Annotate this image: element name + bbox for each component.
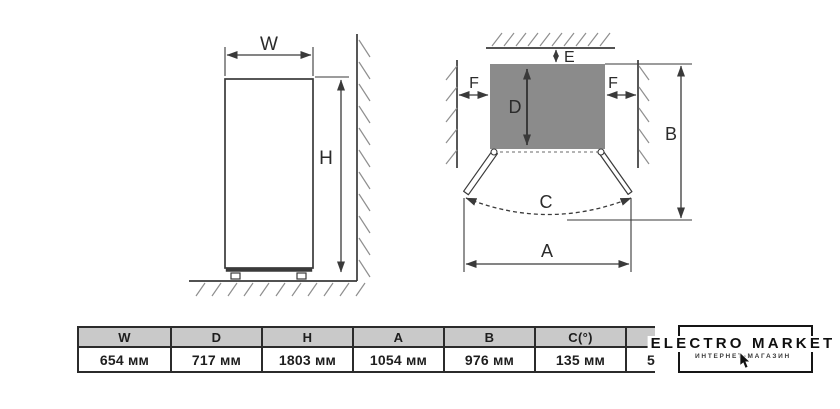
spec-value: 717 мм bbox=[172, 348, 261, 371]
left-wall-hatching bbox=[446, 66, 457, 164]
spec-header: D bbox=[172, 328, 261, 348]
door-hinge-left bbox=[491, 149, 497, 155]
spec-value: 976 мм bbox=[445, 348, 534, 371]
right-wall-hatching bbox=[639, 66, 649, 164]
spec-col-a: A 1054 мм bbox=[352, 328, 443, 371]
total-depth-label: B bbox=[665, 124, 677, 144]
spec-col-c: C(°) 135 мм bbox=[534, 328, 625, 371]
logo-title: ELECTRO MARKET bbox=[648, 336, 839, 352]
wall-hatching bbox=[359, 40, 370, 277]
front-view-diagram: W H bbox=[189, 34, 370, 296]
top-view-diagram: E F F D C B A bbox=[446, 33, 692, 272]
floor-hatching bbox=[196, 283, 365, 296]
spec-col-w: W 654 мм bbox=[79, 328, 170, 371]
width-dimension-label: W bbox=[260, 34, 278, 55]
cabinet-top-view bbox=[490, 64, 605, 149]
spec-header: B bbox=[445, 328, 534, 348]
spec-table-clip: W 654 мм D 717 мм H 1803 мм A 1054 мм B … bbox=[77, 326, 655, 373]
right-clearance-label: F bbox=[608, 75, 618, 92]
height-dimension-label: H bbox=[319, 148, 333, 169]
depth-dimension-label: D bbox=[509, 97, 522, 117]
door-swing-label: C bbox=[540, 192, 553, 212]
spec-value: 1054 мм bbox=[354, 348, 443, 371]
store-logo: ELECTRO MARKET ИНТЕРНЕТ-МАГАЗИН bbox=[662, 325, 824, 375]
fridge-front-outline bbox=[225, 79, 313, 268]
rear-clearance-label: E bbox=[564, 49, 575, 66]
spec-table: W 654 мм D 717 мм H 1803 мм A 1054 мм B … bbox=[77, 326, 655, 373]
product-dimensions-sheet: W H E F F bbox=[0, 0, 840, 409]
door-right-open bbox=[599, 151, 632, 195]
spec-header: W bbox=[79, 328, 170, 348]
door-hinge-right bbox=[598, 149, 604, 155]
spec-value: 1803 мм bbox=[263, 348, 352, 371]
spec-value: 654 мм bbox=[79, 348, 170, 371]
spec-col-h: H 1803 мм bbox=[261, 328, 352, 371]
spec-col-d: D 717 мм bbox=[170, 328, 261, 371]
cursor-icon bbox=[738, 352, 752, 370]
spec-header: H bbox=[263, 328, 352, 348]
fridge-foot-right bbox=[297, 273, 306, 279]
left-clearance-label: F bbox=[469, 75, 479, 92]
fridge-foot-left bbox=[231, 273, 240, 279]
dimension-diagrams: W H E F F bbox=[0, 0, 840, 320]
door-left-open bbox=[464, 150, 498, 194]
spec-value: 135 мм bbox=[536, 348, 625, 371]
spec-header: A bbox=[354, 328, 443, 348]
spec-header: C(°) bbox=[536, 328, 625, 348]
doors-open-width-label: A bbox=[541, 241, 553, 261]
rear-wall-hatching bbox=[492, 33, 610, 46]
spec-col-b: B 976 мм bbox=[443, 328, 534, 371]
